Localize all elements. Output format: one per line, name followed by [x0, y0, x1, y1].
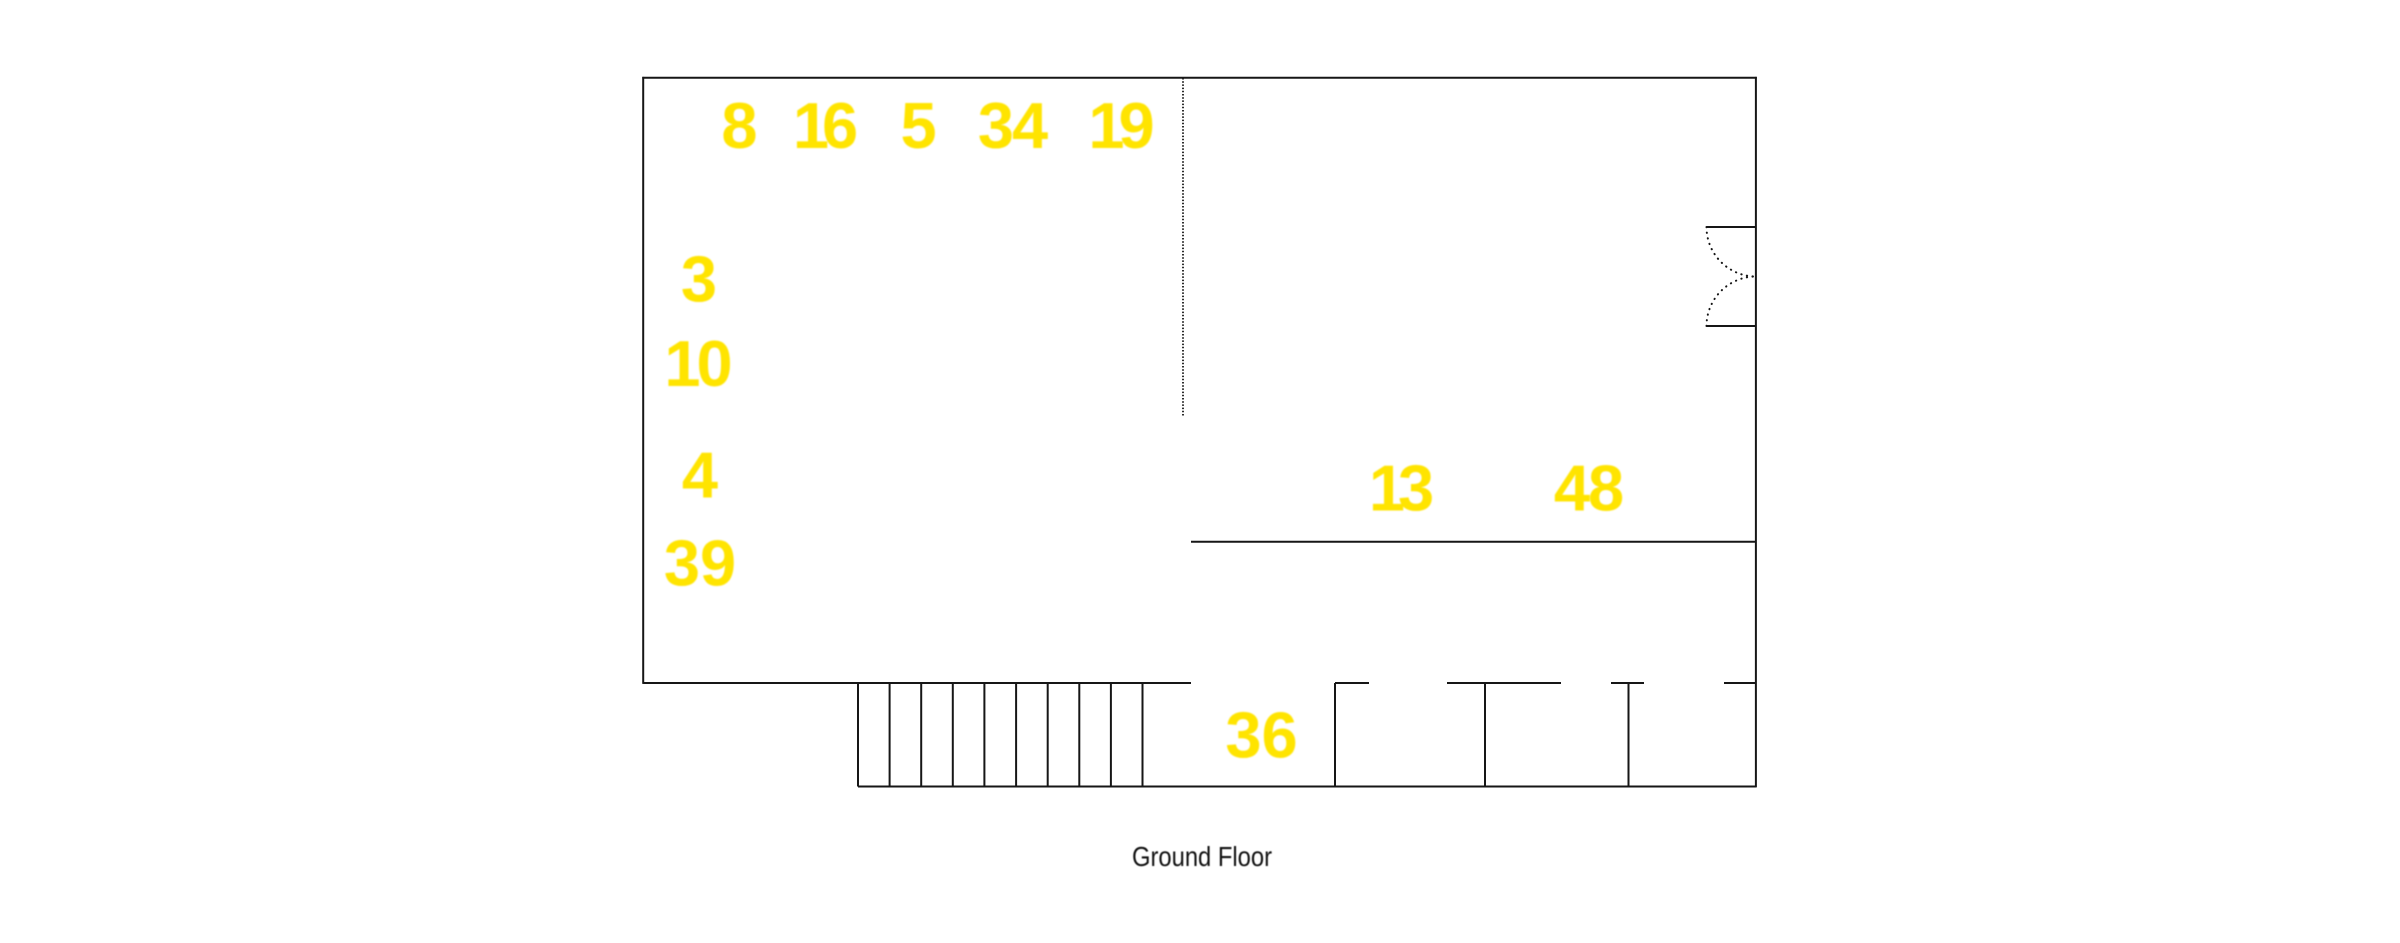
svg-text:34: 34 [978, 89, 1048, 162]
svg-text:4: 4 [682, 438, 718, 511]
svg-text:36: 36 [1225, 698, 1297, 771]
svg-text:13: 13 [1369, 451, 1432, 524]
svg-text:8: 8 [721, 89, 756, 162]
svg-text:Ground Floor: Ground Floor [1132, 841, 1272, 872]
svg-text:3: 3 [681, 242, 715, 315]
svg-text:19: 19 [1088, 89, 1152, 162]
svg-text:10: 10 [664, 327, 730, 400]
svg-text:48: 48 [1554, 451, 1623, 524]
svg-text:5: 5 [901, 89, 936, 162]
svg-text:39: 39 [664, 526, 736, 599]
svg-text:16: 16 [793, 89, 856, 162]
